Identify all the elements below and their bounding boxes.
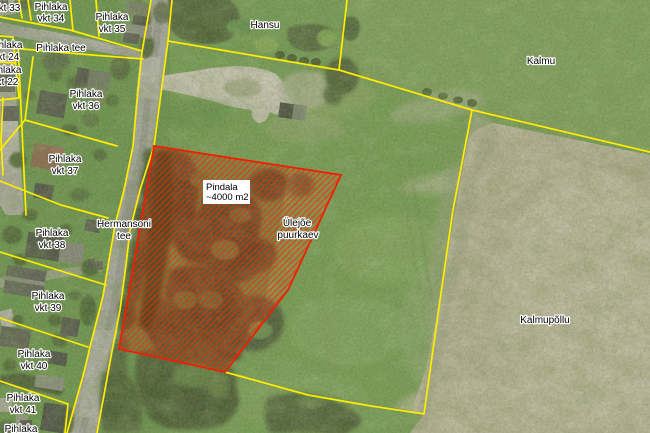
svg-text:~4000 m2: ~4000 m2 [206,192,249,203]
svg-text:vkt 40: vkt 40 [21,361,48,372]
svg-text:vkt 35: vkt 35 [99,24,126,35]
svg-text:Hermansoni: Hermansoni [97,219,151,230]
svg-text:Pihlaka: Pihlaka [36,228,69,239]
svg-text:Kalmupõllu: Kalmupõllu [520,315,569,326]
svg-text:Pihlaka: Pihlaka [70,89,103,100]
svg-text:puurkaev: puurkaev [277,230,318,241]
svg-text:tee: tee [117,231,131,242]
svg-text:vkt 36: vkt 36 [73,101,100,112]
svg-text:vkt 24: vkt 24 [0,52,20,63]
svg-text:vkt 22: vkt 22 [0,77,19,88]
svg-text:Pihlaka: Pihlaka [0,0,24,2]
svg-text:Pihlaka: Pihlaka [35,2,68,13]
svg-text:Pihlaka: Pihlaka [7,393,40,404]
svg-text:vkt 41: vkt 41 [10,405,37,416]
svg-text:Pihlaka: Pihlaka [0,40,23,51]
svg-text:Ülejõe: Ülejõe [283,217,312,229]
svg-text:Pihlaka tee: Pihlaka tee [36,43,86,54]
svg-text:Pihlaka: Pihlaka [32,291,65,302]
svg-text:Kalmu: Kalmu [527,56,555,67]
svg-text:vkt 38: vkt 38 [39,240,66,251]
svg-text:Pihlaka: Pihlaka [18,349,51,360]
svg-text:vkt 37: vkt 37 [52,166,79,177]
svg-text:Pihlaka: Pihlaka [0,65,22,76]
svg-text:Pihlaka: Pihlaka [49,154,82,165]
svg-text:vkt 39: vkt 39 [35,303,62,314]
svg-text:Hansu: Hansu [251,20,280,31]
svg-text:Pihlaka: Pihlaka [5,424,38,433]
svg-text:vkt 33: vkt 33 [0,3,21,14]
svg-text:vkt 34: vkt 34 [38,14,65,25]
svg-text:Pihlaka: Pihlaka [96,12,129,23]
